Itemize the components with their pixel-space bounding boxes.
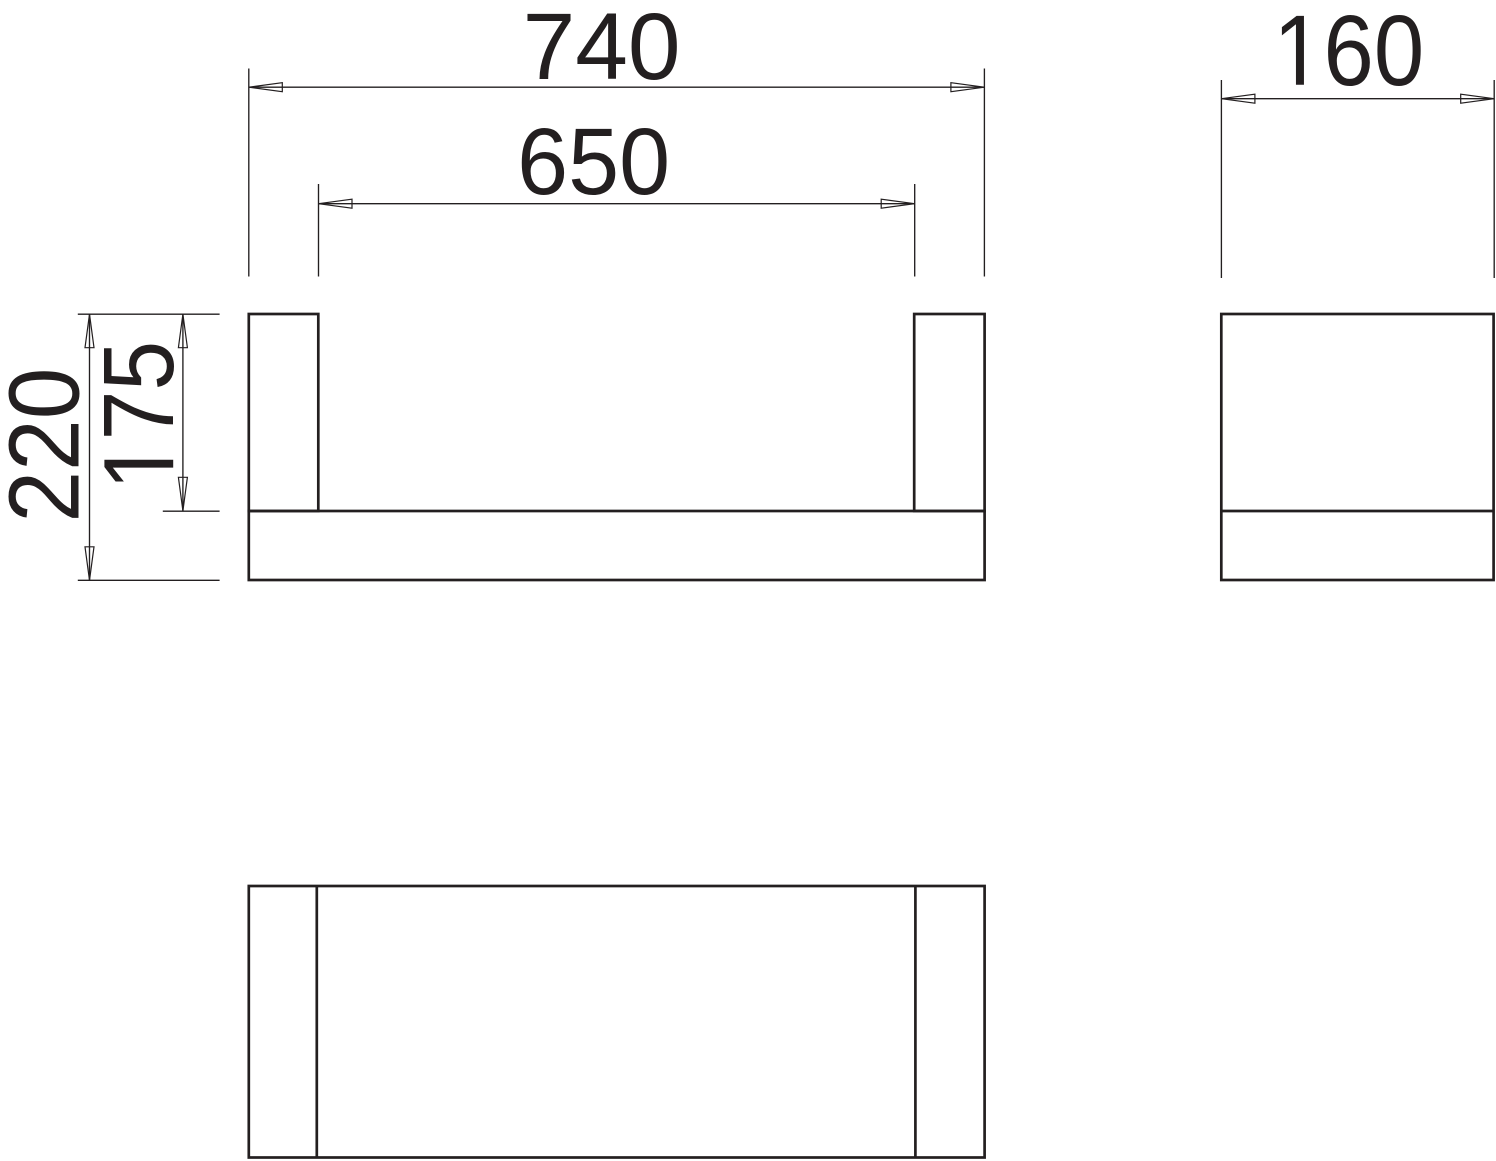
svg-text:75: 75 bbox=[83, 341, 195, 441]
svg-text:740: 740 bbox=[523, 0, 681, 100]
svg-text:60: 60 bbox=[1324, 0, 1425, 107]
svg-text:650: 650 bbox=[517, 109, 670, 215]
